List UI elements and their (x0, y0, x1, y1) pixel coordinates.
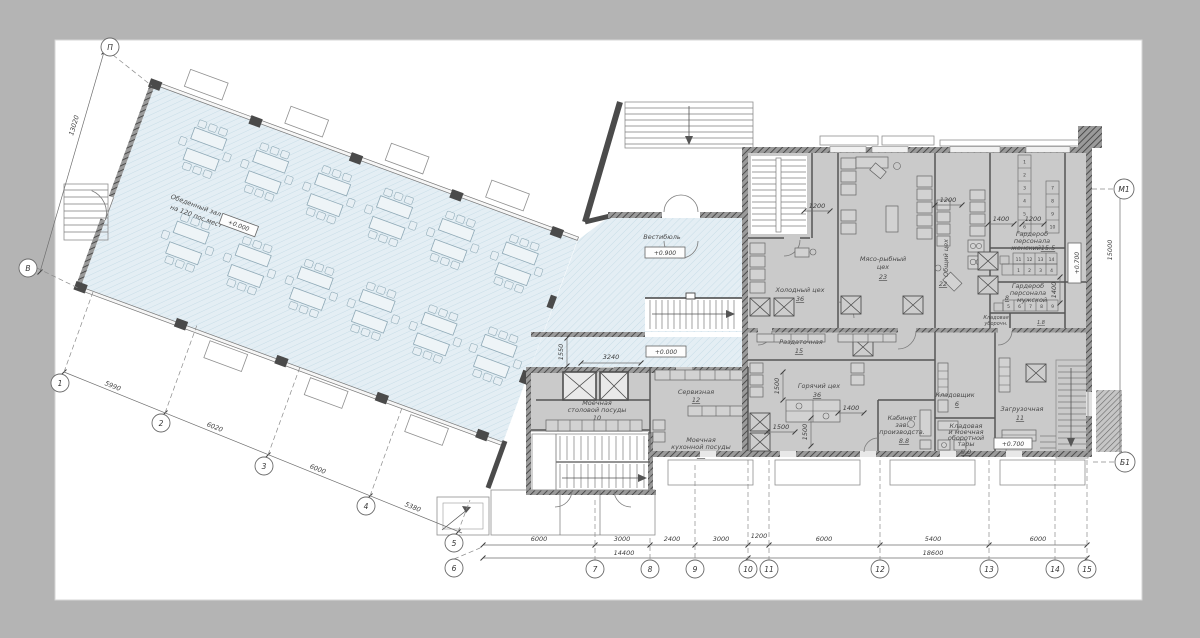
dim-int-1500: 1500 (773, 423, 790, 431)
grid-bubble-8: 8 (641, 560, 659, 578)
room-label-tare-4: тары (957, 440, 974, 448)
svg-text:П: П (107, 43, 113, 52)
svg-text:2: 2 (159, 419, 164, 428)
svg-text:14: 14 (1050, 565, 1060, 574)
room-num-cold: 36 (796, 295, 804, 303)
grid-bubble-11: 11 (760, 560, 778, 578)
dim-int-1400: 1400 (993, 215, 1010, 223)
grid-bubble-14: 14 (1046, 560, 1064, 578)
svg-text:Б1: Б1 (1120, 458, 1130, 467)
locker-number: 1 (1017, 268, 1020, 274)
dim-6000c: 6000 (1030, 535, 1047, 543)
grid-bubble-10: 10 (739, 560, 757, 578)
floor-plan-drawing: Обеденный зал на 120 пос.мест +0.000 Вес… (0, 0, 1200, 638)
dim-3000b: 3000 (713, 535, 730, 543)
room-num-clean: 1.8 (1037, 320, 1045, 326)
room-label-meat: Мясо-рыбный (860, 255, 906, 263)
locker-number: 13 (1038, 257, 1044, 263)
dim-15000: 15000 (1106, 240, 1114, 261)
locker-number: 5 (1007, 304, 1010, 310)
grid-bubble-v: В (19, 259, 37, 277)
dim-total-18600: 18600 (923, 549, 944, 557)
grid-bubble-7: 7 (586, 560, 604, 578)
svg-text:5: 5 (452, 539, 457, 548)
dim-int-3240: 3240 (603, 353, 620, 361)
exterior-ramp (1096, 390, 1122, 452)
dim-6000: 6000 (531, 535, 548, 543)
grid-bubble-5: 5 (445, 534, 463, 552)
room-num-tare: 9.0 (961, 448, 971, 456)
room-label-ww-3: женский (1010, 244, 1041, 252)
grid-bubble-p: П (101, 38, 119, 56)
room-label-meat-2: цех (877, 263, 889, 271)
svg-text:1: 1 (58, 379, 63, 388)
dim-5400: 5400 (925, 535, 942, 543)
svg-text:3: 3 (262, 462, 267, 471)
dim-int-stair: 1200 (809, 202, 826, 210)
room-label-chief-3: производств. (879, 428, 925, 436)
dim-3000: 3000 (614, 535, 631, 543)
vestibule-stair (645, 293, 742, 331)
locker-number: 9 (1051, 212, 1054, 218)
locker-number: 7 (1029, 304, 1032, 310)
grid-bubble-1: 1 (51, 374, 69, 392)
locker-number: 12 (1027, 257, 1033, 263)
svg-text:М1: М1 (1118, 185, 1129, 194)
locker-number: 6 (1018, 304, 1021, 310)
grid-bubble-13: 13 (980, 560, 998, 578)
room-num-wm: 8 (1005, 294, 1009, 302)
svg-text:11: 11 (764, 565, 774, 574)
room-num-serve: 15 (795, 347, 803, 355)
dim-int-1550: 1550 (557, 344, 565, 361)
dim-2400: 2400 (664, 535, 681, 543)
svg-text:9: 9 (693, 565, 698, 574)
room-label-serv: Сервизная (678, 388, 714, 396)
dim-int-1200b: 1200 (1025, 215, 1042, 223)
locker-number: 4 (1023, 199, 1026, 205)
svg-text:6: 6 (452, 564, 457, 573)
elevation-vestibule: +0.900 (645, 247, 685, 258)
grid-bubble-9: 9 (686, 560, 704, 578)
grid-bubble-15: 15 (1078, 560, 1096, 578)
room-num-load: 11 (1016, 414, 1024, 422)
elevation-wardrobe: +0.700 (1068, 243, 1081, 283)
room-label-common: Общий цех (942, 239, 950, 277)
grid-bubble-6: 6 (445, 559, 463, 577)
dim-int-1500v2: 1500 (801, 424, 809, 441)
svg-text:10: 10 (743, 565, 753, 574)
room-num-ww: 15.5 (1041, 244, 1055, 252)
dim-total-14400: 14400 (614, 549, 635, 557)
svg-text:В: В (25, 264, 30, 273)
room-label-vestibule: Вестибюль (643, 233, 681, 241)
locker-number: 3 (1039, 268, 1042, 274)
dim-int-1400v: 1400 (1050, 282, 1058, 299)
grid-bubble-2: 2 (152, 414, 170, 432)
locker-number: 2 (1023, 173, 1026, 179)
room-num-serv: 12 (692, 396, 700, 404)
svg-text:13: 13 (984, 565, 994, 574)
svg-text:4: 4 (364, 502, 369, 511)
locker-number: 1 (1023, 160, 1026, 166)
dim-int-1400b: 1400 (843, 404, 860, 412)
room-num-keeper: 6 (955, 400, 959, 408)
locker-number: 8 (1051, 199, 1054, 205)
dim-int-1500v: 1500 (773, 378, 781, 395)
room-label-keeper: Кладовщик (935, 391, 974, 399)
room-label-clean-2: уборочн. (983, 321, 1007, 327)
dim-6000b: 6000 (816, 535, 833, 543)
grid-bubble-3: 3 (255, 457, 273, 475)
floor-plan-page: Обеденный зал на 120 пос.мест +0.000 Вес… (0, 0, 1200, 638)
elevation-loading: +0.700 (994, 438, 1032, 449)
room-num-meat: 23 (879, 273, 887, 281)
room-label-washK-2: кухонной посуды (671, 443, 731, 451)
grid-bubble-12: 12 (871, 560, 889, 578)
svg-text:+0.900: +0.900 (654, 250, 676, 257)
room-label-hot: Горячий цех (798, 382, 840, 390)
room-num-common: 22 (939, 280, 947, 288)
locker-number: 14 (1049, 257, 1055, 263)
room-num-chief: 8.8 (899, 437, 909, 445)
locker-number: 4 (1050, 268, 1053, 274)
room-label-load: Загрузочная (1001, 405, 1044, 413)
locker-number: 2 (1028, 268, 1031, 274)
grid-bubble-m1: М1 (1114, 179, 1134, 199)
locker-number: 9 (1051, 304, 1054, 310)
locker-number: 11 (1016, 257, 1022, 263)
locker-number: 8 (1040, 304, 1043, 310)
locker-number: 3 (1023, 186, 1026, 192)
svg-text:8: 8 (648, 565, 653, 574)
svg-text:+0.000: +0.000 (655, 349, 677, 356)
room-label-cold: Холодный цех (775, 286, 825, 294)
dim-int-1200: 1200 (940, 196, 957, 204)
dim-1200: 1200 (751, 532, 768, 540)
svg-text:15: 15 (1082, 565, 1092, 574)
elevation-lobby-low: +0.000 (646, 346, 686, 357)
svg-text:12: 12 (875, 565, 885, 574)
grid-bubble-4: 4 (357, 497, 375, 515)
room-label-wm-3: мужской (1017, 296, 1047, 304)
locker-number: 7 (1051, 186, 1054, 192)
locker-number: 10 (1050, 225, 1056, 231)
room-label-serve: Раздаточная (779, 338, 823, 346)
room-num-hot: 36 (813, 391, 821, 399)
room-label-washT-2: столовой посуды (568, 406, 627, 414)
svg-text:+0.700: +0.700 (1002, 441, 1024, 448)
svg-text:7: 7 (593, 565, 598, 574)
grid-bubble-b1: Б1 (1115, 452, 1135, 472)
svg-text:+0.700: +0.700 (1074, 252, 1081, 274)
